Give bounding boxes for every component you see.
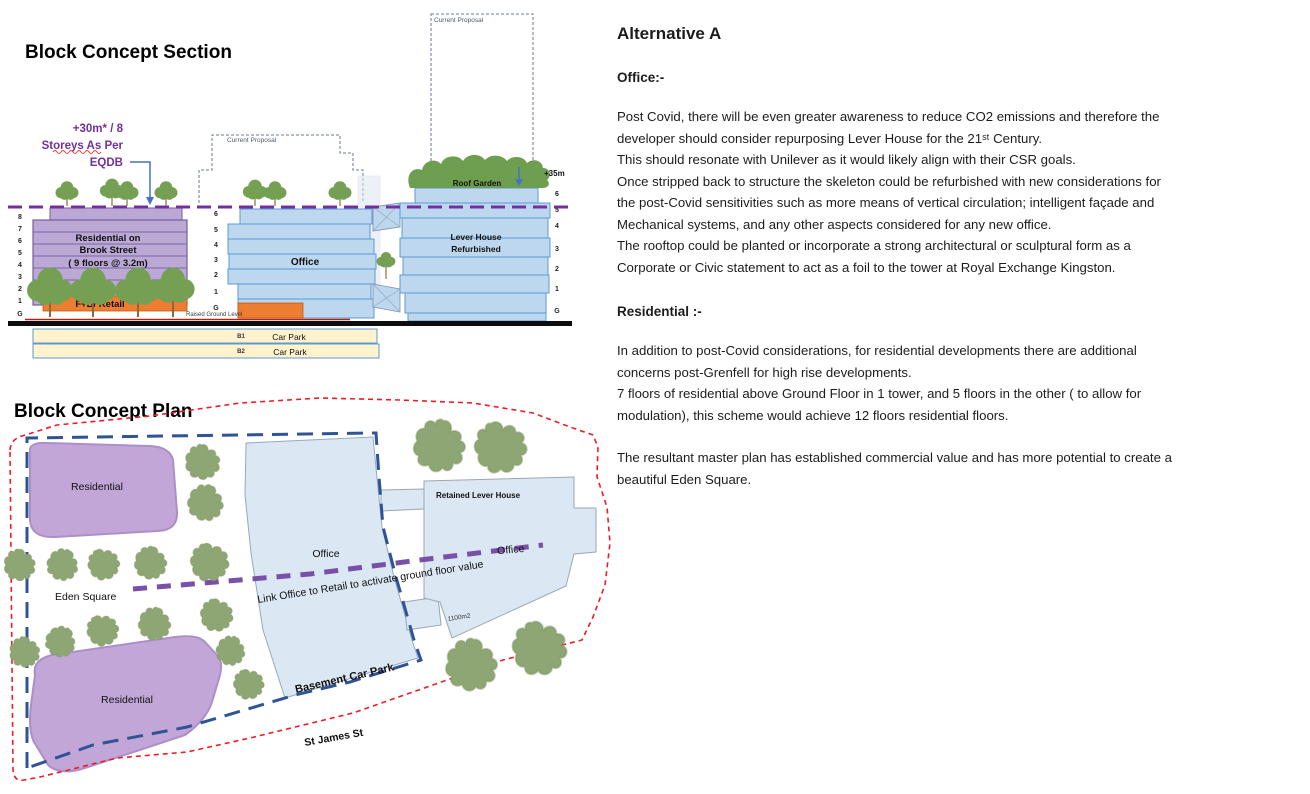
svg-text:5: 5 (214, 227, 218, 234)
tree-icon (469, 414, 533, 479)
height-label: +35m (544, 169, 565, 178)
tree-icon (116, 181, 139, 200)
slide: Block Concept Section Current Proposal C… (0, 0, 1310, 794)
roof-garden-label: Roof Garden (453, 179, 502, 188)
office-paragraph: Post Covid, there will be even greater a… (617, 106, 1310, 278)
svg-text:6: 6 (18, 238, 22, 245)
tree-icon (410, 415, 470, 476)
tree-icon (83, 543, 124, 585)
annotation-line3: EQDB (90, 157, 123, 169)
street-label: St James St (303, 727, 364, 749)
svg-text:3: 3 (555, 246, 559, 253)
tree-icon (508, 615, 572, 680)
block-concept-section-diagram: Block Concept Section Current Proposal C… (0, 0, 600, 385)
residential-name-line1: Residential on (76, 233, 141, 244)
tree-icon (42, 543, 84, 586)
car-park-label-b2: Car Park (273, 347, 307, 357)
svg-text:2: 2 (18, 286, 22, 293)
svg-text:3: 3 (214, 257, 218, 264)
eden-square-label: Eden Square (55, 591, 116, 603)
tree-icon (183, 480, 228, 526)
office-floor-labels: 6 5 4 3 2 1 G (213, 211, 219, 312)
tree-icon (5, 549, 36, 581)
retained-house-annex (404, 597, 441, 630)
tree-icon (155, 181, 178, 200)
tree-icon (443, 636, 500, 695)
plan-title: Block Concept Plan (14, 401, 192, 422)
car-park-label-b1: Car Park (272, 332, 306, 342)
residential-name-line2: Brook Street (79, 245, 137, 256)
annotation-line2: Storeys As Per (42, 140, 124, 152)
svg-text:1: 1 (555, 286, 559, 293)
b1-label: B1 (237, 334, 245, 340)
svg-text:2: 2 (214, 272, 218, 279)
office-right-label: Office (497, 543, 525, 557)
ground-line (8, 321, 572, 326)
link-bridge-plan (381, 489, 424, 511)
residential-top-label: Residential (71, 481, 123, 493)
residential-name-line3: ( 9 floors @ 3.2m) (68, 258, 147, 269)
lever-floor-labels: 6 5 4 3 2 1 G (554, 191, 560, 315)
svg-text:2: 2 (555, 266, 559, 273)
raised-ground-label: Raised Ground Level (186, 312, 242, 318)
tree-icon (132, 544, 169, 582)
svg-text:1: 1 (18, 298, 22, 305)
svg-text:4: 4 (214, 242, 218, 249)
raised-ground-strip (238, 303, 303, 318)
residential-bottom-label: Residential (101, 694, 153, 706)
svg-text:G: G (17, 311, 23, 318)
lever-name-line1: Lever House (450, 232, 501, 242)
b2-label: B2 (237, 349, 245, 355)
current-proposal-label-right: Current Proposal (434, 17, 484, 24)
svg-text:6: 6 (555, 191, 559, 198)
svg-text:3: 3 (18, 274, 22, 281)
residential-heading: Residential :- (617, 304, 1310, 319)
svg-text:8: 8 (18, 214, 22, 221)
svg-text:6: 6 (214, 211, 218, 218)
svg-text:5: 5 (18, 250, 22, 257)
retained-lever-house-label: Retained Lever House (436, 491, 521, 500)
annotation-line1: +30m* / 8 (73, 123, 124, 135)
residential-floor-labels: 8 7 6 5 4 3 2 1 G (17, 214, 23, 318)
tree-icon (10, 637, 40, 668)
svg-text:4: 4 (555, 223, 559, 230)
tree-icon (243, 180, 267, 200)
page-title: Alternative A (617, 24, 1310, 44)
block-concept-plan-diagram: Block Concept Plan (0, 390, 640, 794)
current-proposal-label-mid: Current Proposal (227, 137, 277, 144)
car-park-levels: B1 Car Park B2 Car Park (33, 329, 379, 358)
svg-text:1: 1 (214, 289, 218, 296)
svg-text:7: 7 (18, 226, 22, 233)
tree-icon (198, 596, 235, 634)
tree-icon (329, 181, 352, 200)
tree-icon (230, 665, 268, 704)
svg-text:4: 4 (18, 262, 22, 269)
office-section-label: Office (291, 257, 320, 268)
lever-name-line2: Refurbished (451, 244, 501, 254)
content-column: Alternative A Office:- Post Covid, there… (617, 0, 1310, 490)
tree-icon (264, 181, 287, 200)
office-left-label: Office (312, 548, 339, 560)
tree-icon (186, 444, 220, 479)
closing-paragraph: The resultant master plan has establishe… (617, 447, 1310, 490)
residential-paragraph: In addition to post-Covid considerations… (617, 340, 1310, 426)
tree-icon (56, 181, 79, 200)
svg-text:G: G (554, 308, 560, 315)
tree-icon (187, 539, 233, 586)
section-title: Block Concept Section (25, 42, 232, 63)
svg-text:G: G (213, 305, 219, 312)
office-heading: Office:- (617, 70, 1310, 85)
